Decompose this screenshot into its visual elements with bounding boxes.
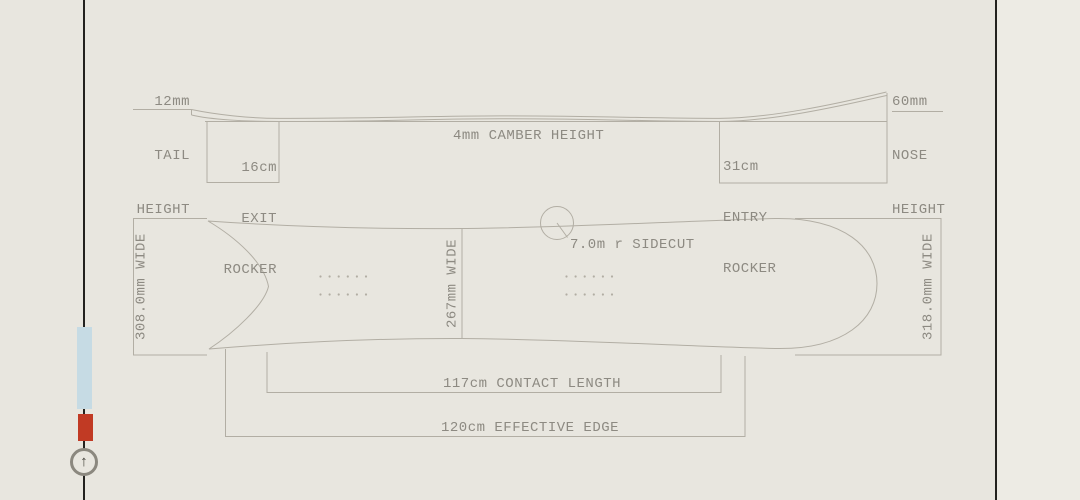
camber-height-label: 4mm CAMBER HEIGHT [453, 127, 604, 145]
contact-length-label: 117cm CONTACT LENGTH [443, 375, 621, 393]
board-base-curve [192, 96, 887, 122]
entry-rocker-label: 31cm ENTRY ROCKER [723, 125, 776, 312]
board-outline [208, 218, 877, 349]
insert-dots-right [565, 275, 613, 295]
sidecut-label: 7.0m r SIDECUT [570, 236, 695, 254]
nose-height-value: 60mm [892, 93, 945, 111]
tail-height-value: 12mm [137, 93, 190, 111]
scroll-track-segment-blue [77, 327, 92, 409]
right-margin-rule [995, 0, 997, 500]
waist-width-label: 267mm WIDE [444, 228, 461, 339]
exit-rocker-value: 16cm [224, 160, 277, 177]
scroll-track-segment-red [78, 414, 93, 441]
tail-width-label: 308.0mm WIDE [133, 219, 150, 354]
effective-edge-label: 120cm EFFECTIVE EDGE [441, 419, 619, 437]
nose-width-label: 318.0mm WIDE [920, 219, 937, 355]
sidecut-radius-line [557, 223, 568, 238]
exit-rocker-label: 16cm EXIT ROCKER [224, 126, 277, 313]
board-top-curve [192, 92, 887, 118]
up-arrow-icon: ↑ [79, 455, 88, 470]
nose-height-label: 60mm NOSE HEIGHT [892, 57, 945, 255]
entry-rocker-value: 31cm [723, 159, 776, 176]
snowboard-spec-diagram: 12mm TAIL HEIGHT 60mm NOSE HEIGHT 4mm CA… [0, 0, 1080, 500]
insert-dots-left [319, 275, 367, 295]
scroll-up-button[interactable]: ↑ [70, 448, 98, 476]
